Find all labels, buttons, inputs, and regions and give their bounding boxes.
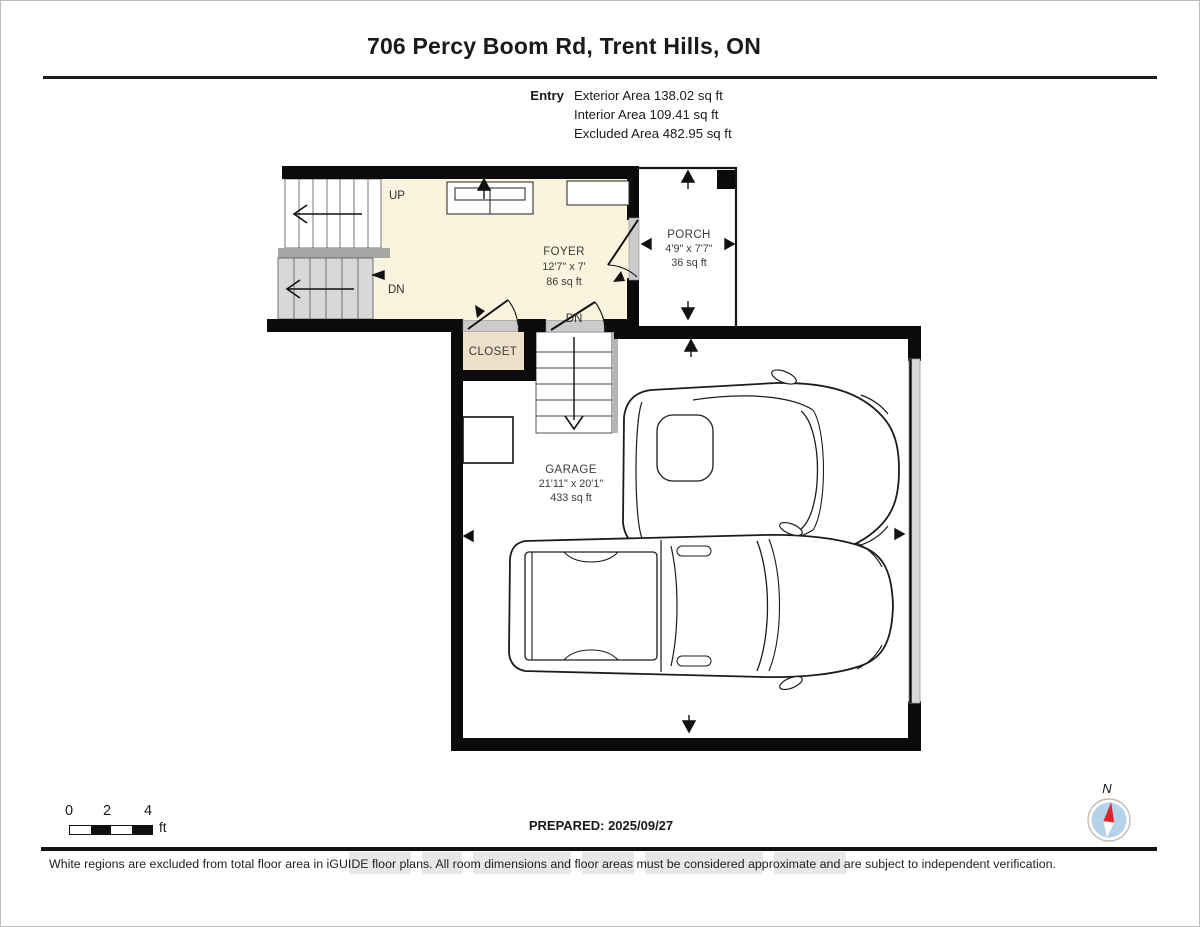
garage-sqft: 433 sq ft [550,492,591,504]
stairs-down-upper [278,258,373,319]
disclaimer-text: White regions are excluded from total fl… [49,857,1056,871]
scale-tick-0: 0 [62,803,76,819]
floorplan-page: 706 Percy Boom Rd, Trent Hills, ON Entry… [0,0,1200,927]
footer-divider [41,847,1157,851]
foyer-label: FOYER [543,246,585,258]
porch-post [717,170,736,189]
foyer-sqft: 86 sq ft [546,276,581,288]
compass-north-label: N [1102,781,1112,796]
garage-shelf [463,417,513,463]
dn-label-stairs: DN [388,284,405,296]
closet-label: CLOSET [469,346,517,358]
dn-label-door: DN [566,313,583,325]
pickup-truck [509,520,893,692]
compass-icon: N [1081,780,1137,846]
stairs-to-garage [536,332,618,433]
scale-tick-2: 2 [100,803,114,819]
foyer-cabinet [567,181,629,205]
prepared-date: PREPARED: 2025/09/27 [1,818,1200,833]
garage-door [909,359,920,703]
floorplan-drawing: FOYER 12'7" x 7' 86 sq ft PORCH 4'9" x 7… [1,1,1200,781]
porch-dims: 4'9" x 7'7" [665,243,712,255]
porch-sqft: 36 sq ft [671,257,706,269]
porch-label: PORCH [667,229,711,241]
garage-label: GARAGE [545,464,597,476]
foyer-bench [447,182,533,214]
foyer-dims: 12'7" x 7' [542,261,585,273]
garage-dims: 21'11" x 20'1" [539,478,604,490]
up-label: UP [389,190,405,202]
stairs-up [285,179,381,248]
scale-tick-4: 4 [141,803,155,819]
stair-landing [278,248,390,258]
